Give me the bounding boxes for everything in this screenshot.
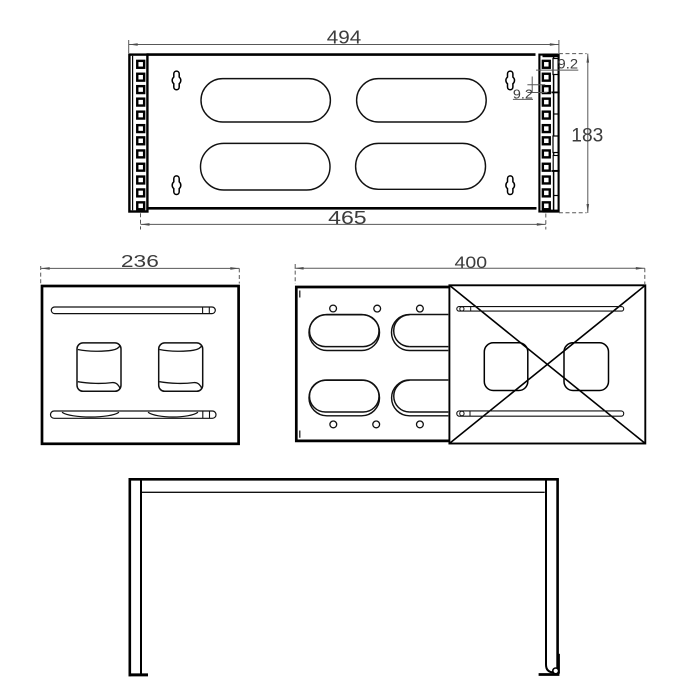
svg-text:400: 400	[455, 253, 488, 272]
svg-text:465: 465	[328, 207, 367, 228]
svg-text:9.2: 9.2	[513, 87, 533, 102]
svg-text:9.2: 9.2	[558, 55, 579, 71]
svg-text:183: 183	[571, 125, 603, 146]
svg-text:236: 236	[121, 251, 159, 271]
svg-text:494: 494	[327, 27, 362, 48]
